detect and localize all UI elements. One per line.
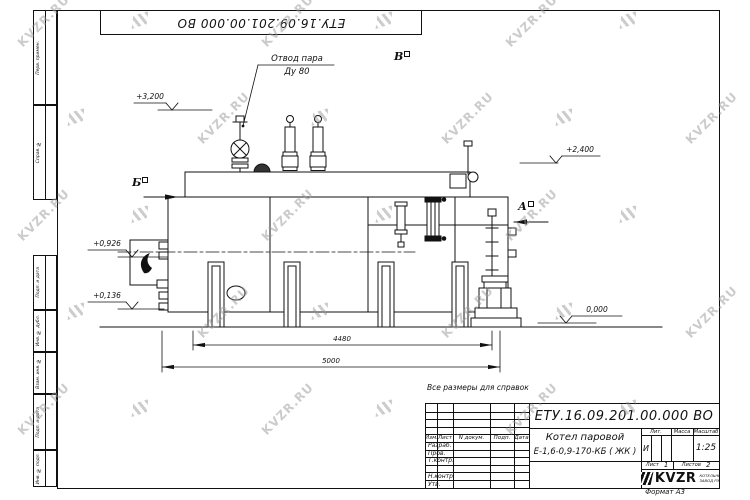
view-marker-a: А bbox=[518, 200, 534, 213]
top-doc-number: ЕТУ.16.09.201.00.000 ВО bbox=[177, 16, 345, 30]
view-marker-v-letter: В bbox=[394, 50, 403, 63]
tb-sheet-label: Лист bbox=[646, 462, 659, 468]
margin-box-sprav: Справ. № bbox=[33, 105, 57, 200]
elevation-label-3200: +3,200 bbox=[130, 92, 170, 101]
tb-row-blank bbox=[426, 465, 455, 473]
tb-doc-number: ЕТУ.16.09.201.00.000 ВО bbox=[529, 404, 719, 428]
tb-row-prov: Пров. bbox=[426, 450, 455, 458]
tb-sheets-value: 2 bbox=[706, 461, 710, 469]
steam-callout-line2: Ду 80 bbox=[260, 67, 334, 77]
kvzr-logo-icon bbox=[641, 472, 653, 485]
margin-box-label: Взам. инв. № bbox=[37, 358, 42, 389]
elevation-label-0000: 0,000 bbox=[575, 305, 619, 314]
kvzr-logo-subtitle-line2: ЗАВОД РЭП bbox=[699, 479, 719, 484]
kvzr-logo: KVZR КОТЕЛЬНЫЙ ЗАВОД РЭП bbox=[641, 471, 719, 486]
dimension-label-4480: 4480 bbox=[320, 335, 364, 343]
margin-box-podp-data-1: Подп. и дата bbox=[33, 255, 57, 310]
top-doc-number-box: ЕТУ.16.09.201.00.000 ВО bbox=[100, 10, 422, 35]
format-label: Формат А3 bbox=[625, 488, 705, 496]
tb-col-izm: Изм. bbox=[426, 434, 437, 442]
margin-box-vzam-inv: Взам. инв. № bbox=[33, 352, 57, 394]
title-block: Изм. Лист N докум. Подп. Дата Разраб. Пр… bbox=[425, 403, 720, 489]
tb-scale-value: 1:25 bbox=[693, 435, 719, 461]
margin-box-label: Справ. № bbox=[37, 141, 42, 163]
elevation-label-2400: +2,400 bbox=[558, 145, 602, 154]
view-marker-a-letter: А bbox=[518, 200, 527, 213]
tb-scale-header: Масштаб bbox=[693, 428, 719, 435]
tb-lit-value: И bbox=[641, 435, 651, 461]
tb-sheets-cell: Листов 2 bbox=[673, 461, 719, 469]
tb-product-name-line1: Котел паровой bbox=[529, 430, 641, 445]
margin-box-label: Инв. № дубл. bbox=[37, 315, 42, 346]
elevation-label-0926: +0,926 bbox=[86, 239, 128, 248]
tb-mass-header: Масса bbox=[671, 428, 693, 435]
sheet-ref-box bbox=[142, 177, 148, 183]
margin-box-inv-podl: Инв. № подл. bbox=[33, 450, 57, 487]
kvzr-logo-text: KVZR bbox=[655, 471, 697, 486]
sheet-ref-box bbox=[528, 201, 534, 207]
margin-box-label: Подп. и дата bbox=[37, 407, 42, 438]
view-marker-v: В bbox=[394, 50, 410, 63]
tb-row-tkontr: Т.контр. bbox=[426, 457, 455, 465]
tb-row-utv: Утв. bbox=[426, 480, 455, 488]
dimension-label-5000: 5000 bbox=[309, 357, 353, 365]
tb-sheet-cell: Лист 1 bbox=[641, 461, 673, 469]
view-marker-b: Б bbox=[132, 176, 148, 189]
tb-logo-cell: KVZR КОТЕЛЬНЫЙ ЗАВОД РЭП bbox=[641, 469, 719, 488]
sheet-ref-box bbox=[404, 51, 410, 57]
margin-box-inv-dubl: Инв. № дубл. bbox=[33, 310, 57, 352]
tb-sheets-label: Листов bbox=[682, 462, 701, 468]
margin-box-label: Перв. примен. bbox=[37, 41, 42, 75]
drawing-sheet: ЕТУ.16.09.201.00.000 ВО Перв. примен. Сп… bbox=[0, 0, 750, 500]
tb-row-nkontr: Н.контр. bbox=[426, 472, 455, 480]
reference-note: Все размеры для справок bbox=[427, 383, 529, 392]
margin-box-podp-data-2: Подп. и дата bbox=[33, 394, 57, 450]
tb-col-podp: Подп. bbox=[490, 434, 514, 442]
tb-col-dokum: N докум. bbox=[453, 434, 490, 442]
tb-row-razrab: Разраб. bbox=[426, 442, 455, 450]
tb-col-list: Лист bbox=[437, 434, 453, 442]
steam-callout-line1: Отвод пара bbox=[260, 54, 334, 65]
elevation-label-0136: +0,136 bbox=[86, 291, 128, 300]
tb-col-data: Дата bbox=[514, 434, 529, 442]
kvzr-logo-subtitle: КОТЕЛЬНЫЙ ЗАВОД РЭП bbox=[699, 474, 719, 483]
margin-box-label: Инв. № подл. bbox=[37, 453, 42, 484]
tb-sheet-value: 1 bbox=[664, 461, 668, 469]
margin-box-perv-primen: Перв. примен. bbox=[33, 10, 57, 105]
tb-product-name-line2: Е-1,6-0,9-170-КБ ( ЖК ) bbox=[529, 444, 641, 459]
tb-lit-header: Лит. bbox=[641, 428, 671, 435]
margin-box-label: Подп. и дата bbox=[37, 267, 42, 298]
view-marker-b-letter: Б bbox=[132, 176, 141, 189]
